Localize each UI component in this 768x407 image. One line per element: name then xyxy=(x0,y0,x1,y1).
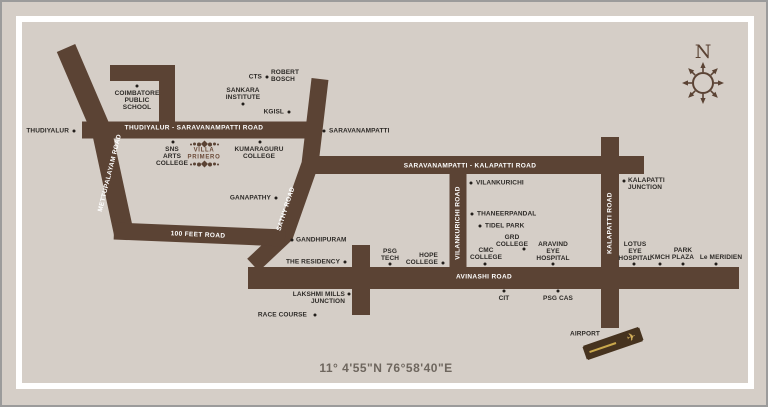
dot-gandhipuram xyxy=(291,239,294,242)
place-cts: CTS xyxy=(249,74,262,81)
place-robert-bosch: ROBERT BOSCH xyxy=(271,69,299,83)
place-kalapatti-junction: KALAPATTI JUNCTION xyxy=(628,177,665,191)
road-label-saravanampatti-kalapatti: SARAVANAMPATTI - KALAPATTI ROAD xyxy=(404,163,537,170)
place-race-course: RACE COURSE xyxy=(258,312,307,319)
road-label-vilankurichi: VILANKURICHI ROAD xyxy=(455,186,462,259)
place-psg-tech: PSG TECH xyxy=(381,248,399,262)
dot-the-residency xyxy=(344,261,347,264)
place-kmch: KMCH xyxy=(650,254,670,261)
dot-lotus-eye-hospital xyxy=(633,263,636,266)
dot-sankara-institute xyxy=(242,103,245,106)
place-kumaraguru-college: KUMARAGURU COLLEGE xyxy=(234,146,283,160)
place-sns-arts-college: SNS ARTS COLLEGE xyxy=(156,146,188,167)
dot-tidel-park xyxy=(479,225,482,228)
dot-le-meridien xyxy=(715,263,718,266)
place-saravanampatti: SARAVANAMPATTI xyxy=(329,128,390,135)
place-lakshmi-mills-junction: LAKSHMI MILLS JUNCTION xyxy=(293,291,345,305)
location-map: THUDIYALUR - SARAVANAMPATTI ROAD METTUPA… xyxy=(0,0,768,407)
place-cmc-college: CMC COLLEGE xyxy=(470,247,502,261)
dot-psg-cas xyxy=(557,290,560,293)
place-ganapathy: GANAPATHY xyxy=(230,195,271,202)
airplane-icon: ✈ xyxy=(625,330,638,344)
place-grd-college: GRD COLLEGE xyxy=(496,234,528,248)
compass-north-label: N xyxy=(695,41,712,63)
place-gandhipuram: GANDHIPURAM xyxy=(296,237,347,244)
dot-vilankurichi xyxy=(470,182,473,185)
dot-kmch xyxy=(659,263,662,266)
road-label-avinashi: AVINASHI ROAD xyxy=(456,274,512,281)
place-thaneerpandal: THANEERPANDAL xyxy=(477,211,536,218)
place-airport: AIRPORT xyxy=(570,331,600,338)
place-sankara-institute: SANKARA INSTITUTE xyxy=(226,87,260,101)
place-hope-college: HOPE COLLEGE xyxy=(406,252,438,266)
compass-icon xyxy=(682,62,724,104)
place-cit: CIT xyxy=(499,295,510,302)
dot-hope-college xyxy=(442,262,445,265)
place-park-plaza: PARK PLAZA xyxy=(672,247,694,261)
dot-park-plaza xyxy=(682,263,685,266)
dot-kalapatti-junction xyxy=(623,180,626,183)
road-label-thudiyalur-saravanampatti: THUDIYALUR - SARAVANAMPATTI ROAD xyxy=(125,125,264,132)
place-le-meridien: Le MERIDIEN xyxy=(700,254,742,261)
dot-coimbatore-public-school xyxy=(136,85,139,88)
place-thudiyalur: THUDIYALUR xyxy=(26,128,69,135)
dot-kumaraguru-college xyxy=(259,141,262,144)
dot-psg-tech xyxy=(389,263,392,266)
place-psg-cas: PSG CAS xyxy=(543,295,573,302)
place-the-residency: THE RESIDENCY xyxy=(286,259,340,266)
dot-thaneerpandal xyxy=(471,213,474,216)
place-lotus-eye-hospital: LOTUS EYE HOSPITAL xyxy=(618,241,651,262)
dot-saravanampatti xyxy=(323,130,326,133)
place-coimbatore-public-school: COIMBATORE PUBLIC SCHOOL xyxy=(115,90,160,111)
dot-cts-robert-bosch xyxy=(266,76,269,79)
dot-cmc-college xyxy=(484,263,487,266)
road-network xyxy=(2,2,768,407)
dot-cit xyxy=(503,290,506,293)
dot-kgisl xyxy=(288,111,291,114)
road-label-kalapatti: KALAPATTI ROAD xyxy=(607,192,614,254)
dot-lakshmi-mills-junction xyxy=(348,293,351,296)
dot-sns-arts-college xyxy=(172,141,175,144)
dot-aravind-eye-hospital xyxy=(552,263,555,266)
place-tidel-park: TIDEL PARK xyxy=(485,223,524,230)
place-aravind-eye-hospital: ARAVIND EYE HOSPITAL xyxy=(536,241,569,262)
dot-ganapathy xyxy=(275,197,278,200)
place-kgisl: KGISL xyxy=(264,109,284,116)
dot-race-course xyxy=(314,314,317,317)
place-vilankurichi: VILANKURICHI xyxy=(476,180,524,187)
dot-thudiyalur xyxy=(73,130,76,133)
map-coordinates: 11° 4'55"N 76°58'40"E xyxy=(319,361,452,375)
